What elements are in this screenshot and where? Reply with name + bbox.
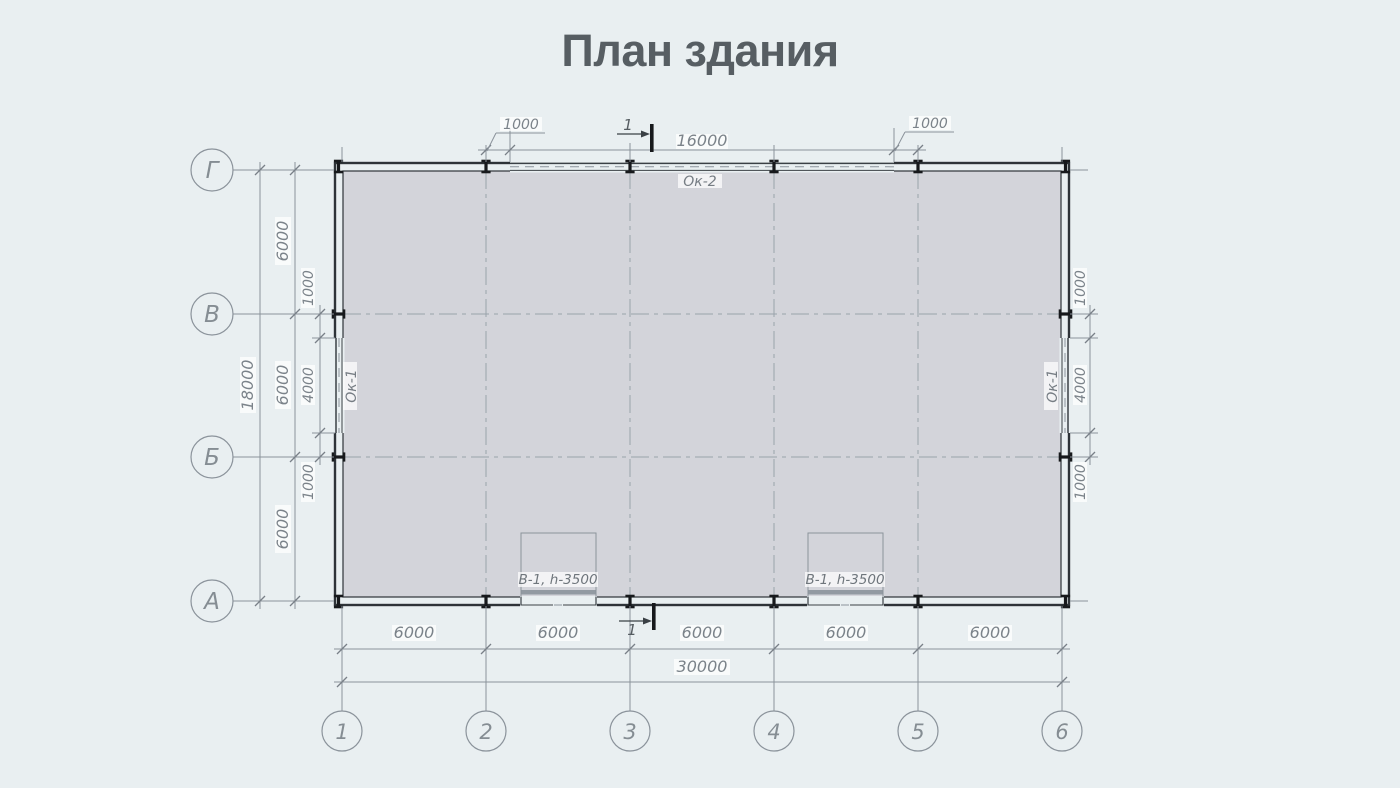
svg-text:Ок-1: Ок-1 — [1045, 369, 1061, 402]
window-left — [333, 338, 345, 433]
dim-left-bay-1: 6000 — [273, 217, 292, 265]
section-top-bar — [650, 124, 654, 152]
section-bottom-bar — [652, 603, 656, 630]
floor-area — [343, 171, 1061, 597]
axis-row-2-label: В — [204, 302, 220, 328]
axis-col-2-label: 2 — [479, 720, 492, 744]
dim-left-bay-2: 6000 — [273, 361, 292, 409]
axis-row-3-label: Б — [204, 445, 220, 471]
axis-col-3-label: 3 — [623, 720, 636, 744]
dim-top-window: 16000 — [677, 131, 728, 150]
dim-bottom-total: 30000 — [677, 657, 728, 676]
axis-col-1-label: 1 — [335, 720, 348, 744]
dim-left-window-offset-bottom: 1000 — [301, 462, 317, 502]
dim-bottom-bay-5: 6000 — [970, 623, 1011, 642]
window-top-label: Ок-2 — [683, 174, 717, 190]
dim-left-window-span: 4000 — [301, 365, 317, 405]
svg-text:1000: 1000 — [1073, 270, 1089, 306]
gate-left-label: В-1, h-3500 — [518, 572, 597, 588]
axis-col-4-label: 4 — [767, 720, 780, 744]
gate-right-threshold — [808, 590, 883, 595]
gate-left-threshold — [521, 590, 596, 595]
dim-bottom-bay-4: 6000 — [826, 623, 867, 642]
dim-bottom-bay-2: 6000 — [538, 623, 579, 642]
dim-bottom-bay-1: 6000 — [394, 623, 435, 642]
window-top — [510, 161, 894, 173]
axis-row-4-label: А — [202, 589, 220, 615]
svg-text:18000: 18000 — [238, 360, 257, 411]
svg-text:1000: 1000 — [301, 270, 317, 306]
svg-text:6000: 6000 — [273, 221, 292, 262]
svg-text:6000: 6000 — [273, 509, 292, 550]
dim-left-total-label: 18000 — [238, 357, 257, 413]
gate-left-wall-break — [520, 596, 597, 608]
dim-top-offset-left: 1000 — [503, 117, 539, 133]
gate-right-wall-break — [807, 596, 884, 608]
window-right — [1060, 338, 1072, 433]
svg-text:1000: 1000 — [1073, 464, 1089, 500]
svg-text:4000: 4000 — [301, 367, 317, 403]
svg-text:Ок-1: Ок-1 — [344, 369, 360, 402]
plan-drawing: План здания — [0, 0, 1400, 788]
axis-col-5-label: 5 — [911, 720, 924, 744]
dim-right-window-span: 4000 — [1073, 365, 1089, 405]
dim-left-bay-3: 6000 — [273, 505, 292, 553]
page-title: План здания — [561, 25, 838, 76]
svg-text:1000: 1000 — [301, 464, 317, 500]
dim-left-window-offset-top: 1000 — [301, 268, 317, 308]
section-bottom-label: 1 — [627, 621, 637, 639]
svg-text:6000: 6000 — [273, 365, 292, 406]
dim-right-window-offset-bottom: 1000 — [1073, 462, 1089, 502]
axis-col-6-label: 6 — [1055, 720, 1068, 744]
dim-top-offset-right: 1000 — [912, 116, 948, 132]
dim-right-window-offset-top: 1000 — [1073, 268, 1089, 308]
svg-text:4000: 4000 — [1073, 367, 1089, 403]
dim-bottom-bay-3: 6000 — [682, 623, 723, 642]
axis-row-1-label: Г — [206, 158, 221, 184]
floor-plan-page: План здания — [0, 0, 1400, 788]
gate-right-label: В-1, h-3500 — [805, 572, 884, 588]
section-top-label: 1 — [623, 116, 633, 134]
